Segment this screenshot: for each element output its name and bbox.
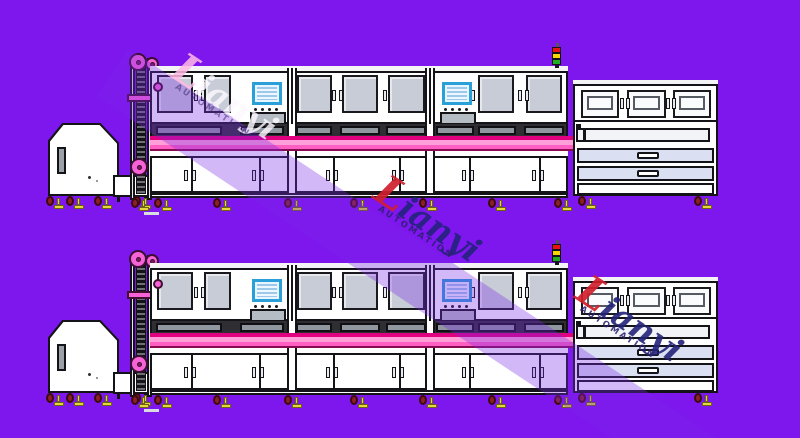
door-handle	[326, 367, 330, 378]
door-handle	[518, 90, 522, 101]
caster	[488, 198, 507, 212]
window-inner-frame	[587, 96, 613, 110]
door-handle	[672, 98, 676, 109]
cabinet-window	[673, 287, 711, 315]
module-divider	[287, 68, 297, 124]
module-divider	[425, 68, 435, 124]
leveling-foot-base	[102, 402, 112, 406]
cabinet-window	[673, 90, 711, 118]
drawer-handle	[637, 152, 659, 159]
module-post	[425, 151, 435, 193]
leveling-foot-stem	[142, 200, 145, 207]
leveling-foot-base	[221, 207, 231, 211]
drawer-handle	[637, 367, 659, 374]
door-handle	[626, 98, 630, 109]
hmi-button	[444, 108, 447, 111]
caster	[488, 395, 507, 409]
conveyor-roller	[130, 355, 148, 373]
door-handle	[392, 367, 396, 378]
leveling-foot-base	[496, 207, 506, 211]
leveling-foot-stem	[499, 397, 502, 404]
caster-wheel	[94, 196, 102, 206]
recess-panel	[524, 126, 564, 135]
scale-dash	[144, 212, 159, 215]
caster-wheel	[284, 395, 292, 405]
leveling-foot-stem	[105, 395, 108, 402]
caster-wheel	[66, 393, 74, 403]
hmi-button	[451, 108, 454, 111]
caster-wheel	[694, 196, 702, 206]
window-inner-frame	[633, 96, 660, 110]
caster-wheel	[154, 395, 162, 405]
caster	[350, 395, 369, 409]
caster	[554, 198, 573, 212]
door-handle	[194, 287, 198, 298]
caster-wheel	[94, 393, 102, 403]
door-handle	[462, 367, 466, 378]
roller-hub	[137, 362, 142, 367]
caster	[284, 395, 303, 409]
window-inner-frame	[679, 96, 705, 110]
leveling-foot-stem	[224, 397, 227, 404]
cabinet-window	[388, 75, 425, 113]
leveling-foot-base	[74, 402, 84, 406]
feeder-dot	[88, 176, 91, 179]
caster	[131, 395, 150, 409]
leveling-foot-base	[427, 404, 437, 408]
work-surface-recess	[584, 128, 710, 142]
module-divider	[287, 265, 297, 321]
feeder-dot	[96, 180, 98, 182]
caster-wheel	[694, 393, 702, 403]
cabinet-shelf-line	[573, 118, 718, 122]
caster	[213, 198, 232, 212]
leveling-foot-base	[586, 205, 596, 209]
door-handle	[192, 367, 196, 378]
hmi-button	[465, 108, 468, 111]
caster	[154, 395, 173, 409]
door-handle	[540, 170, 544, 181]
leveling-foot-stem	[295, 397, 298, 404]
caster	[94, 196, 113, 210]
roller-hub	[137, 165, 142, 170]
conveyor-roller	[130, 158, 148, 176]
recess-panel	[156, 323, 222, 332]
door-handle	[252, 367, 256, 378]
leveling-foot-stem	[705, 198, 708, 205]
leveling-foot-stem	[105, 198, 108, 205]
leveling-foot-base	[102, 205, 112, 209]
caster-wheel	[488, 395, 496, 405]
leveling-foot-stem	[430, 397, 433, 404]
hmi-screen-content	[447, 87, 467, 100]
door-handle	[184, 170, 188, 181]
leveling-foot-base	[139, 404, 149, 408]
leveling-foot-base	[702, 205, 712, 209]
hmi-button	[275, 305, 278, 308]
cabinet-window	[581, 90, 619, 118]
caster-wheel	[488, 198, 496, 208]
cabinet-window	[526, 75, 562, 113]
hmi-button	[254, 305, 257, 308]
caster	[131, 198, 150, 212]
cabinet-bottom-panel	[577, 183, 714, 195]
feeder-dot	[96, 377, 98, 379]
caster-wheel	[46, 393, 54, 403]
hmi-button	[268, 305, 271, 308]
window-inner-frame	[679, 293, 705, 307]
caster	[46, 393, 65, 407]
stack-light-pole	[555, 65, 559, 68]
hmi-screen	[442, 82, 472, 105]
recess-panel	[340, 323, 380, 332]
door-handle	[184, 367, 188, 378]
caster	[694, 393, 713, 407]
recess-panel	[478, 126, 516, 135]
recess-panel	[296, 126, 332, 135]
cabinet-window	[297, 75, 332, 113]
door-handle	[666, 98, 670, 109]
recess-panel	[386, 126, 426, 135]
leveling-foot-base	[496, 404, 506, 408]
cabinet-window	[526, 272, 562, 310]
hmi-screen	[252, 279, 282, 302]
leveling-foot-stem	[142, 397, 145, 404]
caster	[46, 196, 65, 210]
caster-wheel	[66, 196, 74, 206]
door-handle	[201, 287, 205, 298]
recess-panel	[340, 126, 380, 135]
caster-wheel	[578, 196, 586, 206]
caster	[94, 393, 113, 407]
leveling-foot-stem	[499, 200, 502, 207]
drawer-handle	[637, 170, 659, 177]
roller-hub	[136, 257, 141, 262]
recess-panel	[296, 323, 332, 332]
recess-panel	[240, 323, 284, 332]
door-handle	[518, 287, 522, 298]
vent-square	[576, 321, 581, 326]
door-handle	[332, 90, 336, 101]
feeder-dot	[88, 373, 91, 376]
shelf-leg	[117, 394, 120, 399]
caster-wheel	[213, 198, 221, 208]
leveling-foot-stem	[705, 395, 708, 402]
door-handle	[470, 170, 474, 181]
caster-wheel	[554, 198, 562, 208]
door-handle	[400, 367, 404, 378]
leveling-foot-stem	[224, 200, 227, 207]
leveling-foot-base	[702, 402, 712, 406]
leveling-foot-stem	[57, 198, 60, 205]
caster-wheel	[350, 395, 358, 405]
window-roller-peek	[153, 279, 163, 289]
leveling-foot-base	[221, 404, 231, 408]
door-handle	[339, 90, 343, 101]
door-handle	[525, 90, 529, 101]
leveling-foot-base	[139, 207, 149, 211]
caster-wheel	[131, 395, 139, 405]
leveling-foot-base	[562, 207, 572, 211]
caster-wheel	[154, 198, 162, 208]
cabinet-window	[157, 272, 193, 310]
caster	[154, 198, 173, 212]
leveling-foot-stem	[589, 198, 592, 205]
leveling-foot-stem	[361, 397, 364, 404]
door-handle	[339, 287, 343, 298]
door-handle	[525, 287, 529, 298]
leveling-foot-stem	[57, 395, 60, 402]
leveling-foot-base	[162, 404, 172, 408]
caster	[694, 196, 713, 210]
caster	[578, 196, 597, 210]
caster-wheel	[213, 395, 221, 405]
leveling-foot-base	[162, 207, 172, 211]
stack-light-pole	[555, 262, 559, 265]
door-handle	[620, 98, 624, 109]
door-handle	[260, 367, 264, 378]
cabinet-window	[204, 272, 231, 310]
caster	[419, 395, 438, 409]
vent-square	[576, 124, 581, 129]
caster	[213, 395, 232, 409]
door-handle	[672, 295, 676, 306]
cabinet-window	[342, 75, 378, 113]
feeder-handle-slot	[57, 344, 66, 371]
feeder-handle-slot	[57, 147, 66, 174]
door-handle	[462, 170, 466, 181]
leveling-foot-base	[74, 205, 84, 209]
door-handle	[470, 367, 474, 378]
door-handle	[192, 170, 196, 181]
leveling-foot-stem	[77, 395, 80, 402]
shelf-leg	[117, 197, 120, 202]
caster	[66, 393, 85, 407]
recess-panel	[386, 323, 426, 332]
caster	[66, 196, 85, 210]
leveling-foot-base	[358, 404, 368, 408]
drawing-canvas: LianyiAUTOMATIONLianyiAUTOMATIONLianyiAU…	[0, 0, 800, 438]
hmi-screen-content	[257, 284, 277, 297]
door-handle	[532, 170, 536, 181]
caster-wheel	[419, 395, 427, 405]
door-handle	[383, 90, 387, 101]
elevator-rail	[130, 255, 135, 397]
cabinet-window	[478, 75, 514, 113]
hmi-button	[261, 305, 264, 308]
hmi-button	[458, 108, 461, 111]
leveling-foot-stem	[77, 198, 80, 205]
door-handle	[334, 367, 338, 378]
caster-wheel	[46, 196, 54, 206]
scale-dash	[144, 409, 159, 412]
cabinet-window	[627, 90, 666, 118]
leveling-foot-base	[54, 205, 64, 209]
recess-panel	[436, 126, 474, 135]
cabinet-window	[297, 272, 332, 310]
cabinet-top-frame	[573, 80, 718, 86]
door-handle	[666, 295, 670, 306]
leveling-foot-stem	[165, 200, 168, 207]
leveling-foot-base	[54, 402, 64, 406]
door-handle	[332, 287, 336, 298]
door-handle	[334, 170, 338, 181]
leveling-foot-stem	[565, 200, 568, 207]
leveling-foot-stem	[165, 397, 168, 404]
leveling-foot-base	[292, 404, 302, 408]
module-post	[425, 348, 435, 390]
caster-wheel	[131, 198, 139, 208]
module-post	[287, 348, 297, 390]
